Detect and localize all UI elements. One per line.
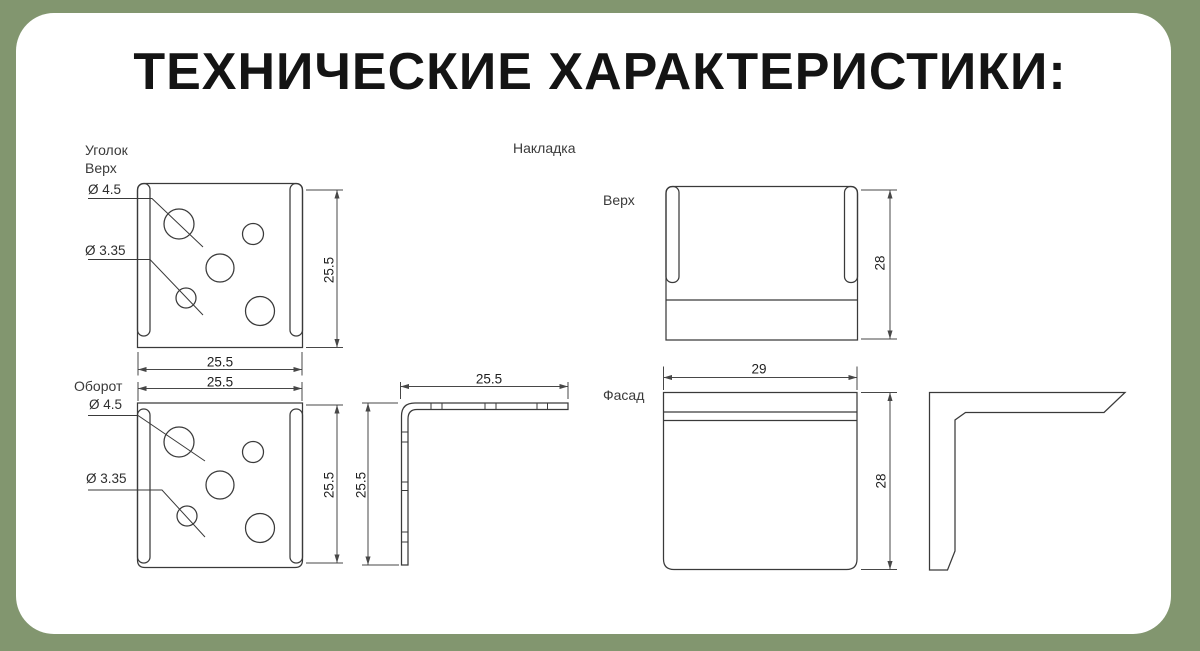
ugolok-back-height-dim: 25.5 [322,472,337,498]
hole [206,254,234,282]
nakladka-front-width-dim: 29 [751,361,766,376]
extension-lines [664,367,898,570]
ugolok-top-width-dim: 25.5 [207,355,233,370]
ugolok-side-width-dim: 25.5 [476,372,502,387]
ugolok-back-dia-large-label: Ø 4.5 [89,397,122,413]
hole [246,514,275,543]
technical-drawing [0,0,1200,651]
nakladka-side-view [930,393,1126,571]
leader-line [88,199,203,248]
hole [164,427,194,457]
ugolok-back-width-dim: 25.5 [207,374,233,389]
hole [243,224,264,245]
ugolok-top-dia-small-label: Ø 3.35 [85,243,126,259]
hole [243,442,264,463]
ugolok-back-view-label: Оборот [74,378,122,394]
nakladka-top-left-flange [666,187,679,283]
nakladka-front-view [664,367,898,570]
nakladka-top-right-flange [845,187,858,283]
ugolok-top-right-flange [290,184,303,337]
ugolok-side-height-dim: 25.5 [354,472,369,498]
nakladka-top-view-label: Верх [603,192,635,208]
hole [246,297,275,326]
hole-ticks [402,403,548,542]
leader-line [88,260,203,316]
extension-lines [138,382,343,563]
ugolok-top-view [88,184,343,376]
nakladka-name-label: Накладка [513,140,576,156]
ugolok-top-view-label: Верх [85,160,117,176]
ugolok-top-dia-large-label: Ø 4.5 [88,182,121,198]
ugolok-back-left-flange [138,409,151,563]
hole [206,471,234,499]
nakladka-top-view [666,187,897,341]
ugolok-top-height-dim: 25.5 [322,257,337,283]
ugolok-back-right-flange [290,409,303,563]
ugolok-back-dia-small-label: Ø 3.35 [86,471,127,487]
nakladka-front-height-dim: 28 [874,473,889,488]
nakladka-top-height-dim: 28 [873,255,888,270]
ugolok-side-view [362,382,568,565]
spec-sheet: { "title": "ТЕХНИЧЕСКИЕ ХАРАКТЕРИСТИКИ:"… [0,0,1200,651]
leader-line [88,490,205,537]
ugolok-name-label: Уголок [85,142,128,158]
nakladka-front-view-label: Фасад [603,387,644,403]
